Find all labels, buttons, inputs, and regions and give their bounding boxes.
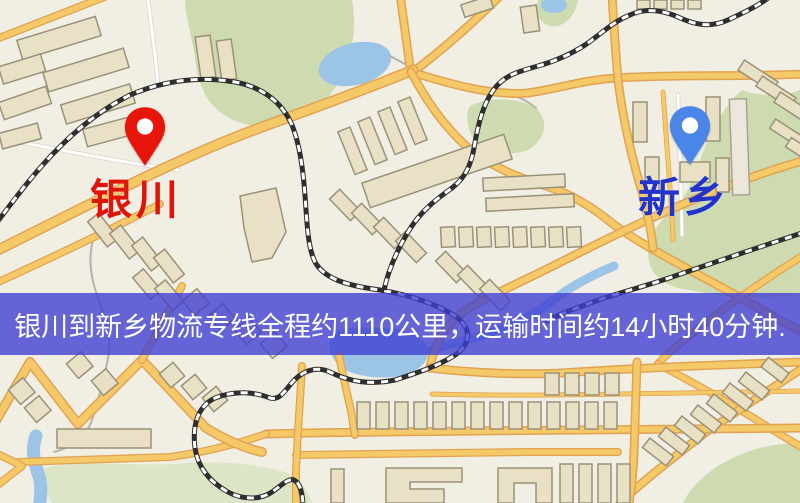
destination-pin-shape <box>670 106 710 164</box>
destination-pin-icon[interactable] <box>667 104 713 168</box>
origin-city-label: 银川 <box>76 180 196 222</box>
map-view: 银川 新乡 银川到新乡物流专线全程约1110公里，运输时间约14小时40分钟. <box>0 0 800 503</box>
map-canvas[interactable] <box>0 0 800 503</box>
route-info-banner: 银川到新乡物流专线全程约1110公里，运输时间约14小时40分钟. <box>0 293 800 355</box>
origin-pin-icon[interactable] <box>122 105 168 169</box>
destination-city-label: 新乡 <box>624 178 744 220</box>
route-info-text: 银川到新乡物流专线全程约1110公里，运输时间约14小时40分钟. <box>14 305 786 344</box>
origin-pin-shape <box>125 107 165 165</box>
